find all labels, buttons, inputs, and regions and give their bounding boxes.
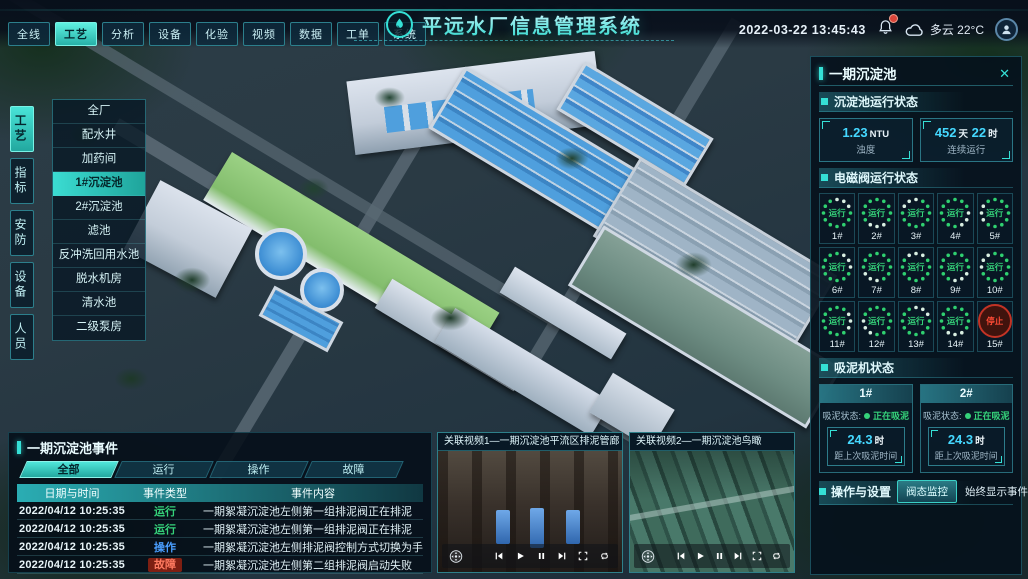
valve-status-text: 运行 xyxy=(899,196,933,230)
user-avatar[interactable] xyxy=(995,18,1018,41)
valve-status-text: 运行 xyxy=(820,304,854,338)
valve-id: 10# xyxy=(978,285,1012,296)
valve-status-text: 运行 xyxy=(938,304,972,338)
show-events-label: 始终显示事件: xyxy=(965,484,1028,499)
fault-badge: 故障 xyxy=(148,558,182,572)
sludge-time-value: 24.3 xyxy=(847,432,872,447)
sludge-time-caption: 距上次吸泥时间 xyxy=(828,449,904,462)
event-datetime: 2022/04/12 10:25:35 xyxy=(17,523,127,535)
valve-status-text: 运行 xyxy=(978,196,1012,230)
datetime-display: 2022-03-22 13:45:43 xyxy=(739,23,866,37)
section-bullet xyxy=(821,364,828,371)
turbidity-label: 浊度 xyxy=(856,142,875,156)
dashboard-root: 全线工艺分析设备化验视频数据工单系统 平远水厂信息管理系统 2022-03-22… xyxy=(0,0,1028,579)
event-content: 一期絮凝沉淀池左侧第一组排泥阀正在排泥 xyxy=(203,503,423,519)
valve-status-grid: 运行 1# 运行 2# 运行 3# 运行 4# 运行 5# 运行 6# xyxy=(819,193,1013,352)
event-type: 操作 xyxy=(127,539,203,555)
left-category-tabs: 工艺指标安防设备人员 xyxy=(10,106,34,360)
fullscreen-icon[interactable] xyxy=(576,548,590,564)
valve-status-cell[interactable]: 运行 11# xyxy=(819,301,855,352)
pump-shape xyxy=(496,510,510,544)
pump-shape xyxy=(530,508,544,548)
sludge-machine-cards: 1# 吸泥状态: 正在吸泥 24.3时 距上次吸泥时间 2# 吸泥状态: 正在吸… xyxy=(819,384,1013,473)
event-content: 一期絮凝沉淀池左侧第二组排泥阀启动失败 xyxy=(203,557,423,573)
sludge-machine-card-2: 2# 吸泥状态: 正在吸泥 24.3时 距上次吸泥时间 xyxy=(920,384,1014,473)
valve-status-cell[interactable]: 运行 5# xyxy=(977,193,1013,244)
events-filter-tab[interactable]: 操作 xyxy=(209,461,309,478)
top-nav-tabs: 全线工艺分析设备化验视频数据工单系统 xyxy=(8,22,426,46)
event-datetime: 2022/04/12 10:25:35 xyxy=(17,505,127,517)
uptime-label: 连续运行 xyxy=(947,142,985,156)
col-content: 事件内容 xyxy=(203,485,423,501)
sludge-machine-id: 1# xyxy=(820,385,912,403)
valve-id: 15# xyxy=(978,339,1012,350)
uptime-card: 452天 22时 连续运行 xyxy=(920,118,1014,162)
logo-icon xyxy=(386,11,413,38)
pump-shape xyxy=(566,510,580,544)
video-2-title: 关联视频2—一期沉淀池鸟瞰 xyxy=(630,433,794,451)
valve-id: 2# xyxy=(859,231,893,242)
video-panel-2: 关联视频2—一期沉淀池鸟瞰 xyxy=(629,432,795,573)
event-row[interactable]: 2022/04/12 10:25:35 操作 一期絮凝沉淀池左侧排泥阀控制方式切… xyxy=(17,538,423,556)
valve-gauge: 运行 xyxy=(899,196,933,230)
events-table: 日期与时间 事件类型 事件内容 2022/04/12 10:25:35 运行 一… xyxy=(17,484,423,574)
section-header-running-status: 沉淀池运行状态 xyxy=(819,92,1013,112)
video-2-controls xyxy=(634,544,790,568)
valve-id: 5# xyxy=(978,231,1012,242)
transport-controls xyxy=(492,548,611,564)
area-menu-item[interactable]: 二级泵房 xyxy=(53,316,145,340)
valve-gauge: 运行 xyxy=(938,250,972,284)
sludge-time-value: 24.3 xyxy=(948,432,973,447)
valve-status-cell[interactable]: 运行 8# xyxy=(898,247,934,298)
notification-bell-icon[interactable] xyxy=(877,19,894,41)
panel-title: 一期沉淀池 xyxy=(819,63,897,83)
events-panel: 一期沉淀池事件 全部运行操作故障 日期与时间 事件类型 事件内容 2022/04… xyxy=(8,432,432,573)
valve-id: 14# xyxy=(938,339,972,350)
valve-gauge: 运行 xyxy=(820,250,854,284)
previous-icon[interactable] xyxy=(492,548,506,564)
event-datetime: 2022/04/12 10:25:35 xyxy=(17,541,127,553)
valve-gauge: 运行 xyxy=(860,196,894,230)
valve-id: 4# xyxy=(938,231,972,242)
sedimentation-detail-panel: 一期沉淀池 ✕ 沉淀池运行状态 1.23NTU 浊度 452天 22时 连续运行… xyxy=(810,56,1022,575)
area-menu-item[interactable]: 反冲洗回用水池 xyxy=(53,244,145,268)
sludge-machine-id: 2# xyxy=(921,385,1013,403)
accent-bar xyxy=(17,441,21,454)
area-menu-item[interactable]: 加药间 xyxy=(53,148,145,172)
valve-status-text: 运行 xyxy=(938,250,972,284)
panel-title-row: 一期沉淀池 ✕ xyxy=(819,61,1013,86)
valve-status-cell[interactable]: 运行 2# xyxy=(858,193,894,244)
close-icon[interactable]: ✕ xyxy=(996,65,1013,82)
area-menu-item[interactable]: 2#沉淀池 xyxy=(53,196,145,220)
valve-gauge: 运行 xyxy=(860,250,894,284)
valve-status-cell[interactable]: 停止 15# xyxy=(977,301,1013,352)
uptime-days: 452 xyxy=(935,125,957,140)
valve-gauge: 运行 xyxy=(938,304,972,338)
cloud-icon xyxy=(905,23,925,37)
col-datetime: 日期与时间 xyxy=(17,485,127,501)
operations-settings-row: 操作与设置 阀态监控 始终显示事件: xyxy=(819,481,1013,505)
next-icon[interactable] xyxy=(555,548,569,564)
events-table-header: 日期与时间 事件类型 事件内容 xyxy=(17,484,423,502)
weather-text: 多云 22°C xyxy=(930,21,984,38)
valve-gauge: 运行 xyxy=(820,196,854,230)
video-1-display xyxy=(438,451,622,572)
valve-status-text: 停止 xyxy=(980,306,1010,336)
valve-gauge: 运行 xyxy=(899,304,933,338)
valve-id: 11# xyxy=(820,339,854,350)
events-filter-tabs: 全部运行操作故障 xyxy=(17,461,423,478)
sludge-time-caption: 距上次吸泥时间 xyxy=(929,449,1005,462)
page-title: 平远水厂信息管理系统 xyxy=(422,10,642,39)
valve-status-cell[interactable]: 运行 4# xyxy=(937,193,973,244)
top-nav-tab[interactable]: 化验 xyxy=(196,22,238,46)
valve-status-cell[interactable]: 运行 6# xyxy=(819,247,855,298)
top-nav-tab[interactable]: 全线 xyxy=(8,22,50,46)
area-menu: 全厂配水井加药间1#沉淀池2#沉淀池滤池反冲洗回用水池脱水机房清水池二级泵房 xyxy=(52,99,146,341)
uptime-hours: 22 xyxy=(972,125,986,140)
valve-id: 8# xyxy=(899,285,933,296)
status-dot xyxy=(965,413,971,419)
valve-status-cell[interactable]: 运行 1# xyxy=(819,193,855,244)
valve-gauge: 运行 xyxy=(938,196,972,230)
header-right-cluster: 2022-03-22 13:45:43 多云 22°C xyxy=(739,18,1018,41)
valve-gauge: 运行 xyxy=(820,304,854,338)
event-content: 一期絮凝沉淀池左侧第一组排泥阀正在排泥 xyxy=(203,521,423,537)
area-menu-item[interactable]: 配水井 xyxy=(53,124,145,148)
event-content: 一期絮凝沉淀池左侧排泥阀控制方式切换为手动 xyxy=(203,539,423,555)
section-header-valves: 电磁阀运行状态 xyxy=(819,168,1013,188)
sludge-status-label: 吸泥状态: xyxy=(923,409,962,422)
sludge-time-box: 24.3时 距上次吸泥时间 xyxy=(827,427,905,466)
event-type: 运行 xyxy=(127,521,203,537)
event-type: 运行 xyxy=(127,503,203,519)
top-nav-tab[interactable]: 视频 xyxy=(243,22,285,46)
valve-status-text: 运行 xyxy=(899,250,933,284)
transport-controls xyxy=(674,548,783,564)
area-menu-item[interactable]: 1#沉淀池 xyxy=(53,172,145,196)
valve-status-text: 运行 xyxy=(820,250,854,284)
video-1-title: 关联视频1—一期沉淀池平流区排泥管廊 xyxy=(438,433,622,451)
round-pool xyxy=(255,228,307,280)
left-category-tab[interactable]: 人员 xyxy=(10,314,34,360)
turbidity-card: 1.23NTU 浊度 xyxy=(819,118,913,162)
valve-id: 6# xyxy=(820,285,854,296)
valve-id: 13# xyxy=(899,339,933,350)
running-status-cards: 1.23NTU 浊度 452天 22时 连续运行 xyxy=(819,118,1013,162)
valve-status-text: 运行 xyxy=(978,250,1012,284)
turbidity-unit: NTU xyxy=(870,129,890,140)
events-title: 一期沉淀池事件 xyxy=(17,438,423,456)
valve-id: 7# xyxy=(859,285,893,296)
loop-icon[interactable] xyxy=(597,548,611,564)
valve-gauge: 停止 xyxy=(978,304,1012,338)
col-type: 事件类型 xyxy=(127,485,203,501)
previous-icon[interactable] xyxy=(674,548,688,564)
valve-id: 3# xyxy=(899,231,933,242)
left-category-tab[interactable]: 指标 xyxy=(10,158,34,204)
events-filter-tab[interactable]: 故障 xyxy=(304,461,404,478)
play-icon[interactable] xyxy=(513,548,527,564)
valve-status-text: 运行 xyxy=(860,196,894,230)
event-type: 故障 xyxy=(127,558,203,572)
valve-monitor-button[interactable]: 阀态监控 xyxy=(897,480,957,503)
event-row[interactable]: 2022/04/12 10:25:35 故障 一期絮凝沉淀池左侧第二组排泥阀启动… xyxy=(17,556,423,574)
turbidity-value: 1.23 xyxy=(842,125,867,140)
valve-gauge: 运行 xyxy=(899,250,933,284)
fullscreen-icon[interactable] xyxy=(750,548,764,564)
sludge-status-label: 吸泥状态: xyxy=(822,409,861,422)
weather-display: 多云 22°C xyxy=(905,21,984,38)
valve-gauge: 运行 xyxy=(978,250,1012,284)
video-1-controls xyxy=(442,544,618,568)
valve-status-text: 运行 xyxy=(860,304,894,338)
video-2-display xyxy=(630,451,794,572)
section-bullet xyxy=(821,174,828,181)
valve-status-cell[interactable]: 运行 12# xyxy=(858,301,894,352)
ptz-dpad-icon[interactable] xyxy=(449,548,463,564)
play-icon[interactable] xyxy=(693,548,707,564)
pause-icon[interactable] xyxy=(534,548,548,564)
left-category-tab[interactable]: 安防 xyxy=(10,210,34,256)
section-header-settings: 操作与设置 xyxy=(819,483,891,500)
left-category-tab[interactable]: 设备 xyxy=(10,262,34,308)
section-header-sludge: 吸泥机状态 xyxy=(819,358,1013,378)
video-panel-1: 关联视频1—一期沉淀池平流区排泥管廊 xyxy=(437,432,623,573)
left-category-tab[interactable]: 工艺 xyxy=(10,106,34,152)
notification-badge xyxy=(889,14,898,23)
valve-status-cell[interactable]: 运行 10# xyxy=(977,247,1013,298)
walkway-shape xyxy=(630,482,794,523)
valve-status-cell[interactable]: 运行 13# xyxy=(898,301,934,352)
top-nav-tab[interactable]: 工单 xyxy=(337,22,379,46)
top-header: 全线工艺分析设备化验视频数据工单系统 平远水厂信息管理系统 2022-03-22… xyxy=(0,0,1028,48)
events-table-body: 2022/04/12 10:25:35 运行 一期絮凝沉淀池左侧第一组排泥阀正在… xyxy=(17,502,423,574)
area-menu-item[interactable]: 脱水机房 xyxy=(53,268,145,292)
title-underline xyxy=(354,40,674,41)
valve-status-cell[interactable]: 运行 3# xyxy=(898,193,934,244)
area-menu-item[interactable]: 滤池 xyxy=(53,220,145,244)
valve-status-cell[interactable]: 运行 7# xyxy=(858,247,894,298)
top-nav-tab[interactable]: 设备 xyxy=(149,22,191,46)
accent-bar xyxy=(819,67,823,80)
valve-status-cell[interactable]: 运行 9# xyxy=(937,247,973,298)
valve-id: 1# xyxy=(820,231,854,242)
sludge-time-box: 24.3时 距上次吸泥时间 xyxy=(928,427,1006,466)
valve-gauge: 运行 xyxy=(978,196,1012,230)
ptz-dpad-icon[interactable] xyxy=(641,548,655,564)
events-filter-tab[interactable]: 全部 xyxy=(19,461,119,478)
section-bullet xyxy=(821,98,828,105)
next-icon[interactable] xyxy=(731,548,745,564)
valve-id: 12# xyxy=(859,339,893,350)
top-nav-tab[interactable]: 工艺 xyxy=(55,22,97,46)
top-nav-tab[interactable]: 数据 xyxy=(290,22,332,46)
top-nav-tab[interactable]: 分析 xyxy=(102,22,144,46)
events-filter-tab[interactable]: 运行 xyxy=(114,461,214,478)
status-dot xyxy=(864,413,870,419)
valve-status-text: 运行 xyxy=(860,250,894,284)
sludge-machine-card-1: 1# 吸泥状态: 正在吸泥 24.3时 距上次吸泥时间 xyxy=(819,384,913,473)
app-title-block: 平远水厂信息管理系统 xyxy=(386,10,642,39)
valve-gauge: 运行 xyxy=(860,304,894,338)
valve-status-text: 运行 xyxy=(938,196,972,230)
sludge-status-value: 正在吸泥 xyxy=(873,409,909,422)
area-menu-item[interactable]: 清水池 xyxy=(53,292,145,316)
event-row[interactable]: 2022/04/12 10:25:35 运行 一期絮凝沉淀池左侧第一组排泥阀正在… xyxy=(17,502,423,520)
section-bullet xyxy=(819,488,826,495)
valve-status-text: 运行 xyxy=(820,196,854,230)
event-row[interactable]: 2022/04/12 10:25:35 运行 一期絮凝沉淀池左侧第一组排泥阀正在… xyxy=(17,520,423,538)
valve-status-cell[interactable]: 运行 14# xyxy=(937,301,973,352)
area-menu-item[interactable]: 全厂 xyxy=(53,100,145,124)
valve-id: 9# xyxy=(938,285,972,296)
pause-icon[interactable] xyxy=(712,548,726,564)
sludge-status-value: 正在吸泥 xyxy=(974,409,1010,422)
event-datetime: 2022/04/12 10:25:35 xyxy=(17,559,127,571)
valve-status-text: 运行 xyxy=(899,304,933,338)
loop-icon[interactable] xyxy=(769,548,783,564)
